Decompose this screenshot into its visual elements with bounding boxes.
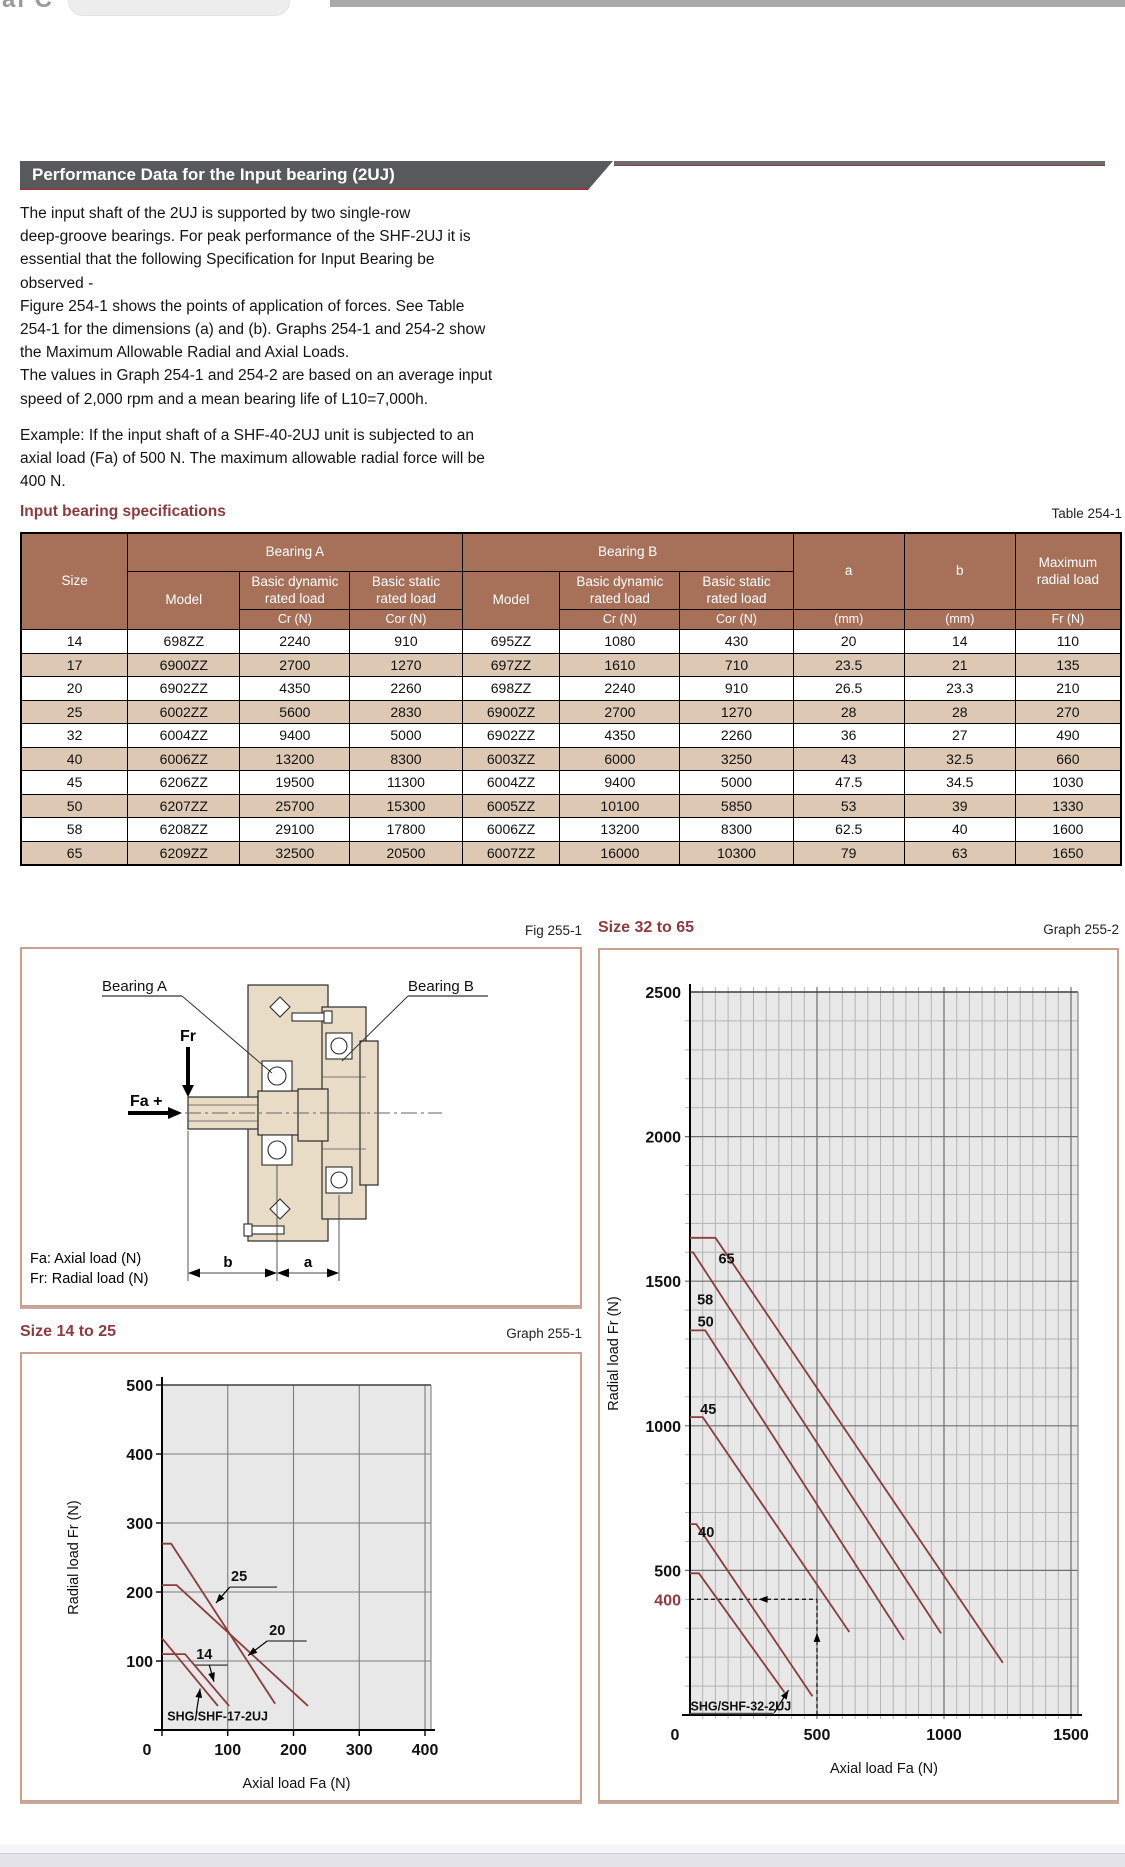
table-cell: 270 [1015,700,1121,724]
bottom-strip [0,1845,1125,1853]
table-cell: 13200 [560,818,680,842]
input-bearing-spec-table: Size Bearing A Bearing B a b Maximum rad… [20,532,1122,866]
table-cell: 32500 [240,841,350,865]
table-cell: 34.5 [904,771,1015,795]
table-cell: 47.5 [793,771,904,795]
table-cell: 10300 [680,841,793,865]
table-cell: 11300 [350,771,462,795]
table-cell: 698ZZ [128,630,240,654]
table-cell: 5000 [350,724,462,748]
col-header-model-a: Model [128,572,240,630]
svg-text:20: 20 [269,1623,285,1639]
col-header-max-radial: Maximum radial load [1015,533,1121,610]
caption-fr: Fr: Radial load (N) [30,1271,148,1287]
table-cell: 6004ZZ [462,771,560,795]
svg-text:400: 400 [412,1742,439,1759]
graph1-title: Size 14 to 25 [20,1323,116,1341]
svg-text:1000: 1000 [926,1727,962,1744]
table-cell: 20 [21,677,128,701]
table-cell: 3250 [680,747,793,771]
figure-heading-row: Fig 255-1 [20,923,582,938]
browser-chrome-text-fragment: al C [2,0,54,12]
table-row: 14698ZZ2240910695ZZ10804302014110 [21,630,1121,654]
table-cell: 14 [21,630,128,654]
svg-text:300: 300 [126,1516,153,1533]
table-cell: 27 [904,724,1015,748]
table-cell: 6002ZZ [128,700,240,724]
table-cell: 697ZZ [462,653,560,677]
table-cell: 6004ZZ [128,724,240,748]
svg-text:SHG/SHF-32-2UJ: SHG/SHF-32-2UJ [691,1699,792,1713]
table-cell: 6209ZZ [128,841,240,865]
table-cell: 6902ZZ [462,724,560,748]
svg-text:400: 400 [654,1592,681,1609]
catalog-page: al C Performance Data for the Input bear… [0,0,1125,1867]
table-cell: 1600 [1015,818,1121,842]
table-cell: 29100 [240,818,350,842]
svg-text:500: 500 [804,1727,831,1744]
table-cell: 1080 [560,630,680,654]
svg-text:Radial load Fr (N): Radial load Fr (N) [66,1500,82,1614]
table-cell: 10100 [560,794,680,818]
col-header-bearing-b: Bearing B [462,533,793,572]
table-cell: 698ZZ [462,677,560,701]
table-row: 326004ZZ940050006902ZZ435022603627490 [21,724,1121,748]
table-cell: 23.5 [793,653,904,677]
unit-cr-a: Cr (N) [240,610,350,630]
col-header-stat-b: Basic static rated load [680,572,793,610]
browser-tab-pill[interactable] [68,0,290,16]
table-row: 406006ZZ1320083006003ZZ600032504332.5660 [21,747,1121,771]
table-cell: 6003ZZ [462,747,560,771]
wave-generator [298,1089,328,1141]
col-header-b: b [904,533,1015,610]
svg-text:0: 0 [671,1727,680,1744]
table-cell: 1330 [1015,794,1121,818]
dim-a-label: a [304,1254,313,1271]
table-cell: 6000 [560,747,680,771]
table-cell: 26.5 [793,677,904,701]
table-cell: 32 [21,724,128,748]
table-number-label: Table 254-1 [1051,506,1122,521]
table-cell: 58 [21,818,128,842]
bearing-b-callout: Bearing B [408,978,474,995]
table-cell: 20500 [350,841,462,865]
bearing-a-ball [268,1067,286,1085]
svg-text:58: 58 [697,1292,713,1308]
table-cell: 43 [793,747,904,771]
table-cell: 1610 [560,653,680,677]
table-cell: 910 [680,677,793,701]
table-row: 206902ZZ43502260698ZZ224091026.523.3210 [21,677,1121,701]
table-cell: 1270 [350,653,462,677]
fr-force-label: Fr [180,1028,196,1045]
table-cell: 2260 [680,724,793,748]
fa-arrow [168,1107,182,1119]
table-cell: 2240 [240,630,350,654]
table-row: 506207ZZ25700153006005ZZ1010058505339133… [21,794,1121,818]
svg-text:400: 400 [126,1447,153,1464]
table-cell: 19500 [240,771,350,795]
graph-255-2: 5001000150020002500400500100015000Axial … [600,950,1117,1800]
figure-number-label: Fig 255-1 [525,923,582,938]
intro-text: The input shaft of the 2UJ is supported … [20,202,600,493]
table-cell: 490 [1015,724,1121,748]
svg-text:200: 200 [126,1585,153,1602]
fr-arrow [182,1085,194,1097]
fa-force-label: Fa + [130,1093,162,1110]
graph2-heading-row: Size 32 to 65 Graph 255-2 [598,919,1119,937]
table-cell: 660 [1015,747,1121,771]
col-header-size: Size [21,533,128,630]
table-section-title: Input bearing specifications [20,503,226,521]
table-cell: 6006ZZ [128,747,240,771]
table-cell: 17 [21,653,128,677]
col-header-model-b: Model [462,572,560,630]
table-cell: 110 [1015,630,1121,654]
col-header-bearing-a: Bearing A [128,533,462,572]
table-cell: 2240 [560,677,680,701]
section-banner: Performance Data for the Input bearing (… [20,161,1105,190]
table-row: 456206ZZ19500113006004ZZ9400500047.534.5… [21,771,1121,795]
svg-text:200: 200 [280,1742,307,1759]
figure-box: Bearing A Bearing B Fr Fa + [20,947,582,1307]
table-cell: 16000 [560,841,680,865]
graph2-box: 5001000150020002500400500100015000Axial … [598,948,1119,1802]
table-cell: 6007ZZ [462,841,560,865]
table-cell: 2830 [350,700,462,724]
dim-b-label: b [223,1254,232,1271]
table-cell: 32.5 [904,747,1015,771]
svg-text:14: 14 [196,1647,212,1663]
table-cell: 1650 [1015,841,1121,865]
table-cell: 65 [21,841,128,865]
svg-text:100: 100 [126,1654,153,1671]
table-cell: 135 [1015,653,1121,677]
table-cell: 695ZZ [462,630,560,654]
table-cell: 6208ZZ [128,818,240,842]
table-cell: 5000 [680,771,793,795]
svg-text:SHG/SHF-17-2UJ: SHG/SHF-17-2UJ [167,1709,268,1723]
table-cell: 210 [1015,677,1121,701]
svg-text:500: 500 [126,1378,153,1395]
table-cell: 9400 [240,724,350,748]
table-cell: 20 [793,630,904,654]
table-cell: 4350 [240,677,350,701]
graph2-number-label: Graph 255-2 [1043,922,1119,937]
browser-chrome-bar [330,0,1125,7]
table-cell: 25 [21,700,128,724]
banner-shape: Performance Data for the Input bearing (… [20,161,613,190]
bearing-cross-section-figure: Bearing A Bearing B Fr Fa + [22,949,580,1305]
table-cell: 6006ZZ [462,818,560,842]
unit-cor-b: Cor (N) [680,610,793,630]
table-row: 256002ZZ560028306900ZZ270012702828270 [21,700,1121,724]
table-cell: 13200 [240,747,350,771]
svg-text:2000: 2000 [645,1130,681,1147]
table-cell: 63 [904,841,1015,865]
banner-rule [614,161,1105,166]
svg-text:50: 50 [698,1315,714,1331]
svg-text:Axial load Fa (N): Axial load Fa (N) [243,1776,351,1792]
table-cell: 2700 [240,653,350,677]
table-cell: 28 [793,700,904,724]
example-paragraph: Example: If the input shaft of a SHF-40-… [20,424,600,494]
unit-cor-a: Cor (N) [350,610,462,630]
table-cell: 21 [904,653,1015,677]
unit-fr: Fr (N) [1015,610,1121,630]
table-cell: 8300 [350,747,462,771]
graph-255-1: 1002003004005001002003004000Axial load F… [22,1354,580,1800]
table-cell: 40 [904,818,1015,842]
graph1-heading-row: Size 14 to 25 Graph 255-1 [20,1323,582,1341]
svg-text:1500: 1500 [1053,1727,1089,1744]
table-cell: 17800 [350,818,462,842]
svg-text:0: 0 [143,1742,152,1759]
table-cell: 6005ZZ [462,794,560,818]
svg-text:2500: 2500 [645,985,681,1002]
caption-fa: Fa: Axial load (N) [30,1251,141,1267]
table-cell: 5600 [240,700,350,724]
svg-text:45: 45 [700,1402,716,1418]
table-cell: 8300 [680,818,793,842]
table-cell: 1270 [680,700,793,724]
table-cell: 39 [904,794,1015,818]
table-cell: 50 [21,794,128,818]
table-cell: 4350 [560,724,680,748]
table-cell: 53 [793,794,904,818]
unit-b-mm: (mm) [904,610,1015,630]
intro-paragraph: The input shaft of the 2UJ is supported … [20,202,600,411]
table-row: 656209ZZ32500205006007ZZ1600010300796316… [21,841,1121,865]
table-cell: 40 [21,747,128,771]
table-cell: 6900ZZ [128,653,240,677]
table-heading-row: Input bearing specifications Table 254-1 [20,503,1122,521]
table-cell: 910 [350,630,462,654]
svg-text:65: 65 [718,1251,734,1267]
table-cell: 6900ZZ [462,700,560,724]
svg-text:100: 100 [214,1742,241,1759]
table-cell: 710 [680,653,793,677]
svg-text:Radial load Fr (N): Radial load Fr (N) [606,1296,622,1410]
bearing-b-ball [331,1038,347,1054]
table-cell: 6207ZZ [128,794,240,818]
table-cell: 2260 [350,677,462,701]
table-cell: 2700 [560,700,680,724]
col-header-a: a [793,533,904,610]
graph2-title: Size 32 to 65 [598,919,694,937]
svg-text:40: 40 [698,1525,714,1541]
unit-a-mm: (mm) [793,610,904,630]
col-header-dyn-a: Basic dynamic rated load [240,572,350,610]
table-cell: 14 [904,630,1015,654]
svg-text:1500: 1500 [645,1274,681,1291]
table-cell: 45 [21,771,128,795]
svg-text:1000: 1000 [645,1419,681,1436]
bearing-a-callout: Bearing A [102,978,167,995]
table-cell: 6902ZZ [128,677,240,701]
page-title: Performance Data for the Input bearing (… [32,161,395,188]
table-cell: 36 [793,724,904,748]
svg-text:25: 25 [231,1569,247,1585]
table-row: 176900ZZ27001270697ZZ161071023.521135 [21,653,1121,677]
col-header-dyn-b: Basic dynamic rated load [560,572,680,610]
table-cell: 79 [793,841,904,865]
table-row: 586208ZZ29100178006006ZZ13200830062.5401… [21,818,1121,842]
col-header-stat-a: Basic static rated load [350,572,462,610]
graph1-box: 1002003004005001002003004000Axial load F… [20,1352,582,1802]
unit-cr-b: Cr (N) [560,610,680,630]
bottom-bar [0,1853,1125,1867]
table-cell: 5850 [680,794,793,818]
table-cell: 430 [680,630,793,654]
svg-text:300: 300 [346,1742,373,1759]
table-cell: 62.5 [793,818,904,842]
table-cell: 9400 [560,771,680,795]
table-cell: 28 [904,700,1015,724]
table-cell: 23.3 [904,677,1015,701]
svg-text:500: 500 [654,1563,681,1580]
svg-text:Axial load Fa (N): Axial load Fa (N) [830,1761,938,1777]
graph1-number-label: Graph 255-1 [506,1326,582,1341]
table-cell: 1030 [1015,771,1121,795]
table-cell: 6206ZZ [128,771,240,795]
table-cell: 25700 [240,794,350,818]
table-cell: 15300 [350,794,462,818]
